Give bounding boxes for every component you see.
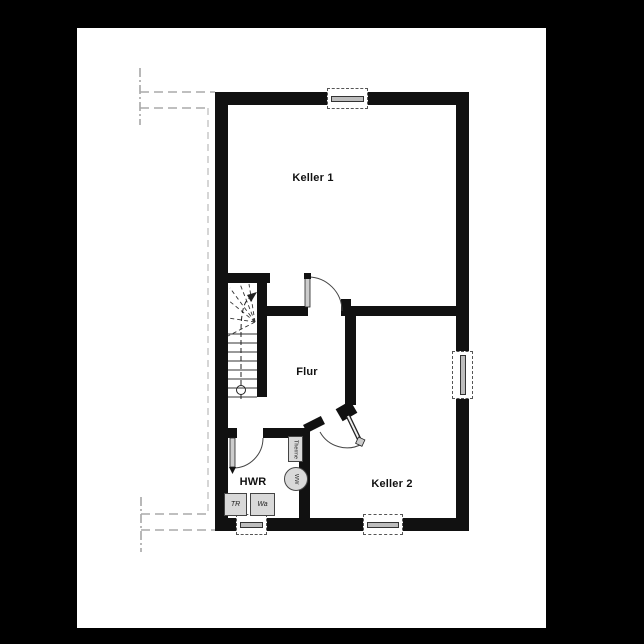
fixture-therme-label: Therme [293,440,299,459]
staircase [228,284,257,399]
door-keller1 [304,273,342,311]
reference-lines [140,68,215,552]
fixture-therme: Therme [288,436,303,462]
room-label-flur: Flur [296,366,318,378]
fixture-washer-label: Wa [257,501,267,508]
room-label-keller2: Keller 2 [371,478,412,490]
door-keller2 [320,416,365,448]
door-hwr [229,438,263,474]
room-label-hwr: HWR [240,476,267,488]
fixture-boiler-label: WW [293,474,299,484]
fixture-dryer-label: TR [231,501,240,508]
plan-linework [0,0,644,644]
fixture-washer: Wa [250,493,275,516]
walking-line-start-icon [237,386,246,395]
floor-plan-image: Therme WW TR Wa Keller 1 Flur HWR Keller… [0,0,644,644]
fixture-boiler: WW [284,467,308,491]
room-label-keller1: Keller 1 [292,172,333,184]
fixture-dryer: TR [224,493,247,516]
